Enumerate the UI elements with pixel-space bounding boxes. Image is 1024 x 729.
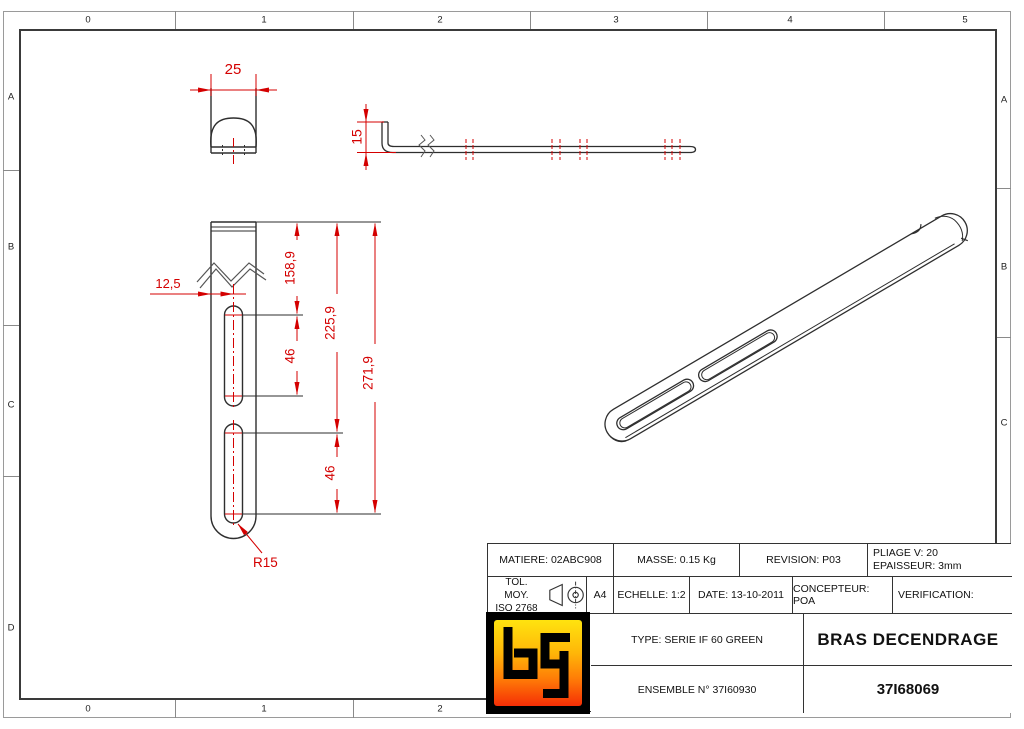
dim-offset-label: 12,5	[155, 276, 180, 291]
revision-value: REVISION: P03	[766, 554, 841, 566]
titleblock-cell-concepteur: CONCEPTEUR: POA	[793, 577, 893, 614]
dim-flange-label: 15	[349, 129, 365, 145]
dim-total-length-label: 271,9	[361, 356, 376, 390]
dim-radius-label: R15	[253, 555, 278, 570]
epaisseur-value: EPAISSEUR: 3mm	[873, 560, 962, 573]
titleblock-cell-pliage: PLIAGE V: 20 EPAISSEUR: 3mm	[868, 544, 1012, 577]
iso-view	[597, 204, 974, 447]
end-view-dimension-25	[190, 74, 277, 164]
logo-letters	[486, 612, 590, 714]
type-value: TYPE: SERIE IF 60 GREEN	[631, 634, 763, 646]
dim-slot1-length-label: 46	[283, 348, 298, 363]
matiere-value: MATIERE: 02ABC908	[499, 554, 602, 566]
side-view-centerline-ticks	[466, 139, 680, 160]
company-logo	[486, 612, 590, 714]
echelle-value: ECHELLE: 1:2	[617, 589, 685, 601]
part-number: 37I68069	[877, 681, 940, 698]
titleblock-cell-revision: REVISION: P03	[740, 544, 868, 577]
side-view	[382, 122, 696, 157]
titleblock-cell-ensemble: ENSEMBLE N° 37I60930	[591, 666, 804, 713]
ensemble-value: ENSEMBLE N° 37I60930	[638, 684, 757, 696]
drawing-title: BRAS DECENDRAGE	[817, 630, 998, 650]
titleblock-cell-echelle: ECHELLE: 1:2	[614, 577, 690, 614]
titleblock-cell-part-number: 37I68069	[804, 666, 1012, 713]
concepteur-value: CONCEPTEUR: POA	[793, 583, 892, 607]
titleblock-cell-format: A4	[587, 577, 614, 614]
dim-slot2-length-label: 46	[323, 465, 338, 480]
tolerance-line1: TOL. MOY.	[493, 576, 540, 602]
titleblock-cell-type: TYPE: SERIE IF 60 GREEN	[591, 614, 804, 666]
titleblock-cell-verification: VERIFICATION:	[893, 577, 1012, 614]
verification-value: VERIFICATION:	[898, 589, 974, 601]
masse-value: MASSE: 0.15 Kg	[637, 554, 716, 566]
front-view-centerlines	[225, 284, 242, 528]
engineering-drawing-sheet: { "border": { "top_labels": ["0","1","2"…	[0, 0, 1024, 729]
titleblock-cell-tolerance: TOL. MOY. ISO 2768	[488, 577, 587, 614]
format-value: A4	[594, 589, 607, 601]
titleblock-cell-date: DATE: 13-10-2011	[690, 577, 793, 614]
titleblock-cell-masse: MASSE: 0.15 Kg	[614, 544, 740, 577]
dim-width-label: 25	[225, 61, 242, 78]
titleblock-cell-matiere: MATIERE: 02ABC908	[488, 544, 614, 577]
dim-slot2-top-label: 225,9	[323, 306, 338, 340]
pliage-value: PLIAGE V: 20	[873, 547, 962, 560]
dim-slot1-top-label: 158,9	[283, 251, 298, 285]
titleblock-cell-title: BRAS DECENDRAGE	[804, 614, 1012, 666]
projection-symbol-icon	[546, 580, 586, 610]
date-value: DATE: 13-10-2011	[698, 589, 784, 601]
